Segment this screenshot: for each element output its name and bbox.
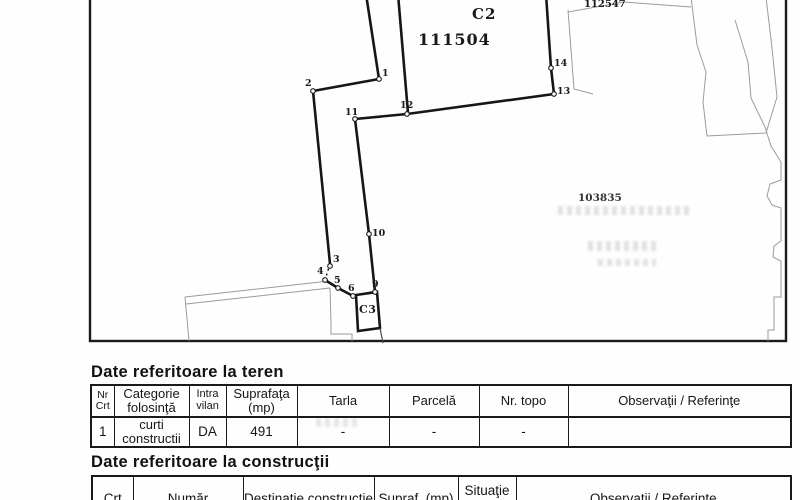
map-frame — [90, 0, 786, 341]
point-label: 1 — [382, 68, 389, 79]
neighbor-parcel-top-label: 112547 — [584, 0, 626, 10]
point-label: 9 — [372, 279, 379, 290]
cell-categorie: curti constructii — [114, 417, 189, 447]
point-marker — [373, 290, 378, 295]
point-label: 10 — [372, 228, 386, 239]
point-label: 5 — [334, 275, 341, 286]
col-header-intravilan: Intra vilan — [189, 385, 226, 417]
col-header-categorie: Categorie folosinţă — [114, 385, 189, 417]
col-header-tarla: Tarla — [297, 385, 389, 417]
boundary-point-labels: 1 2 3 4 5 6 9 10 11 12 13 14 — [305, 58, 570, 294]
building-c3-label: C3 — [359, 303, 376, 316]
point-label: 4 — [317, 266, 324, 277]
col-header-numar: Număr — [133, 476, 243, 500]
point-label: 2 — [305, 78, 312, 89]
col-header-crt: Crt — [92, 476, 133, 500]
point-marker — [311, 89, 316, 94]
col-header-situatie: Situaţie juridică — [458, 476, 516, 500]
cell-suprafata: 491 — [226, 417, 297, 447]
col-header-observatii2: Observaţii / Referinţe — [516, 476, 791, 500]
land-table: Nr Crt Categorie folosinţă Intra vilan S… — [90, 384, 792, 448]
land-section-heading: Date referitoare la teren — [91, 363, 284, 382]
cadastral-map: 1 2 3 4 5 6 9 10 11 12 13 14 C2 111504 1… — [0, 0, 800, 345]
cell-observatii — [568, 417, 791, 447]
col-header-nr-crt: Nr Crt — [91, 385, 114, 417]
point-marker — [549, 66, 554, 71]
col-header-destinatie: Destinaţie construcţie — [243, 476, 374, 500]
parcel-number-label: 111504 — [418, 30, 491, 49]
land-table-header-row: Nr Crt Categorie folosinţă Intra vilan S… — [91, 385, 791, 417]
point-marker — [367, 232, 372, 237]
point-label: 6 — [348, 283, 355, 294]
constructions-section-heading: Date referitoare la construcţii — [91, 453, 330, 472]
cell-tarla: - — [297, 417, 389, 447]
neighbor-parcel-right-label: 103835 — [578, 192, 622, 204]
bleed-through-artifact — [588, 241, 660, 251]
point-marker — [328, 264, 333, 269]
point-label: 14 — [554, 58, 568, 69]
point-label: 3 — [333, 254, 340, 265]
point-marker — [377, 77, 382, 82]
bleed-through-artifact — [558, 206, 690, 215]
cell-nr-crt: 1 — [91, 417, 114, 447]
point-marker — [552, 92, 557, 97]
point-marker — [405, 112, 410, 117]
point-marker — [351, 294, 356, 299]
cell-nr-topo: - — [479, 417, 568, 447]
building-c2-wall — [398, 0, 408, 113]
cell-intravilan: DA — [189, 417, 226, 447]
building-c2-label: C2 — [472, 5, 496, 23]
col-header-observatii: Observaţii / Referinţe — [568, 385, 791, 417]
point-label: 11 — [345, 107, 358, 118]
neighbor-parcel-lines — [185, 0, 781, 341]
col-header-nr-topo: Nr. topo — [479, 385, 568, 417]
constructions-table-header-row: Crt Număr Destinaţie construcţie Supraf.… — [92, 476, 791, 500]
boundary-point-markers — [311, 66, 557, 299]
constructions-table: Crt Număr Destinaţie construcţie Supraf.… — [91, 475, 792, 500]
point-label: 13 — [557, 86, 570, 97]
cadastral-document-page: 1 2 3 4 5 6 9 10 11 12 13 14 C2 111504 1… — [0, 0, 800, 500]
bleed-through-artifact — [598, 259, 656, 266]
col-header-parcela: Parcelă — [389, 385, 479, 417]
cell-parcela: - — [389, 417, 479, 447]
col-header-supraf: Supraf. (mp) — [374, 476, 458, 500]
point-marker — [323, 278, 328, 283]
col-header-suprafata: Suprafaţa (mp) — [226, 385, 297, 417]
land-table-row: 1 curti constructii DA 491 - - - — [91, 417, 791, 447]
point-label: 12 — [400, 100, 413, 111]
point-marker — [336, 286, 341, 291]
